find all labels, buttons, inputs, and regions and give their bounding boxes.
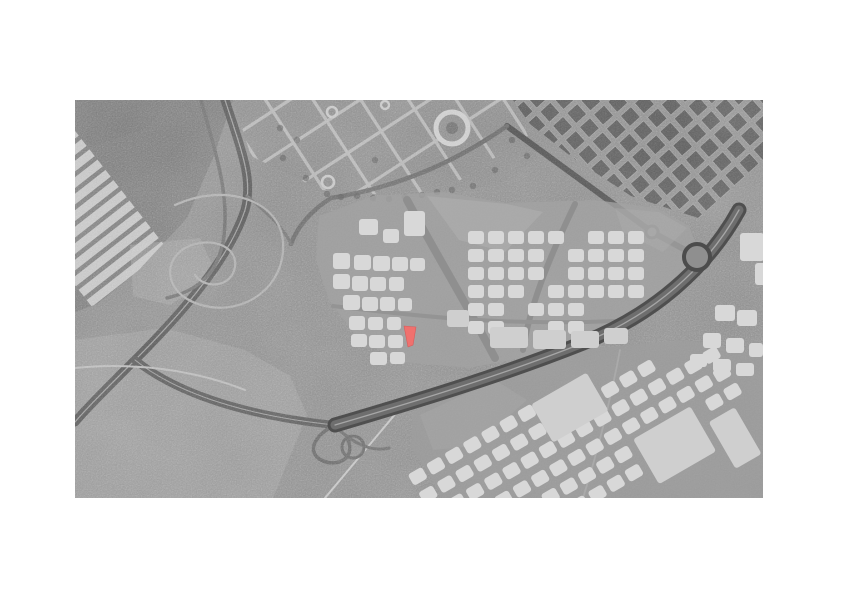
masterplan-block xyxy=(468,267,484,280)
masterplan-block xyxy=(468,249,484,262)
masterplan-block xyxy=(398,298,412,311)
masterplan-block xyxy=(404,211,425,236)
masterplan-block xyxy=(528,231,544,244)
masterplan-block xyxy=(568,249,584,262)
masterplan-block xyxy=(737,310,757,326)
masterplan-block xyxy=(389,277,404,291)
masterplan-block xyxy=(628,285,644,298)
masterplan-block xyxy=(468,303,484,316)
masterplan-block xyxy=(333,274,350,289)
masterplan-block xyxy=(488,267,504,280)
masterplan-block xyxy=(359,219,378,235)
masterplan-block xyxy=(604,328,628,344)
masterplan-block xyxy=(468,285,484,298)
masterplan-block xyxy=(755,263,763,285)
masterplan-block xyxy=(548,303,564,316)
masterplan-block xyxy=(387,317,401,330)
masterplan-block xyxy=(588,267,604,280)
masterplan-block xyxy=(608,231,624,244)
masterplan-block xyxy=(370,352,387,365)
masterplan-block xyxy=(548,285,564,298)
masterplan-block xyxy=(608,285,624,298)
masterplan-block xyxy=(508,249,524,262)
masterplan-block xyxy=(410,258,425,271)
masterplan-block xyxy=(343,295,360,310)
masterplan-block xyxy=(488,249,504,262)
aerial-map xyxy=(75,100,763,498)
masterplan-block xyxy=(508,285,524,298)
masterplan-block xyxy=(488,285,504,298)
masterplan-block xyxy=(528,303,544,316)
masterplan-block xyxy=(380,297,395,311)
masterplan-block xyxy=(349,316,365,330)
masterplan-block xyxy=(608,249,624,262)
masterplan-block xyxy=(390,352,405,364)
masterplan-block xyxy=(628,249,644,262)
masterplan-block xyxy=(388,335,403,348)
masterplan-block xyxy=(736,363,754,376)
page xyxy=(0,0,842,595)
masterplan-block xyxy=(362,297,378,311)
masterplan-block xyxy=(588,249,604,262)
masterplan-block xyxy=(383,229,399,243)
masterplan-block xyxy=(373,256,390,271)
masterplan-block xyxy=(568,303,584,316)
masterplan-block xyxy=(354,255,371,270)
masterplan-block xyxy=(528,249,544,262)
masterplan-block xyxy=(548,231,564,244)
masterplan-block xyxy=(703,333,721,348)
masterplan-block xyxy=(740,233,763,261)
masterplan-block xyxy=(488,303,504,316)
masterplan-block xyxy=(392,257,408,271)
masterplan-block xyxy=(588,231,604,244)
masterplan-block xyxy=(628,231,644,244)
masterplan-block xyxy=(369,335,385,348)
masterplan-block xyxy=(568,267,584,280)
masterplan-block xyxy=(726,338,744,353)
masterplan-block xyxy=(571,331,599,348)
masterplan-block xyxy=(333,253,350,269)
masterplan-block xyxy=(508,267,524,280)
masterplan-block xyxy=(488,231,504,244)
masterplan-block xyxy=(528,267,544,280)
site-location-figure xyxy=(75,100,763,498)
masterplan-block xyxy=(568,285,584,298)
masterplan-block xyxy=(351,334,367,347)
masterplan-block xyxy=(447,310,469,327)
masterplan-block xyxy=(508,231,524,244)
masterplan-block xyxy=(370,277,386,291)
masterplan-block xyxy=(588,285,604,298)
motorway-roundabout xyxy=(684,244,710,270)
masterplan-block xyxy=(533,330,566,349)
masterplan-block xyxy=(468,231,484,244)
masterplan-block xyxy=(368,317,383,330)
masterplan-block xyxy=(490,327,528,348)
masterplan-block xyxy=(608,267,624,280)
masterplan-block xyxy=(352,276,368,291)
masterplan-block xyxy=(749,343,763,357)
masterplan-block xyxy=(628,267,644,280)
masterplan-block xyxy=(715,305,735,321)
masterplan-block xyxy=(468,321,484,334)
